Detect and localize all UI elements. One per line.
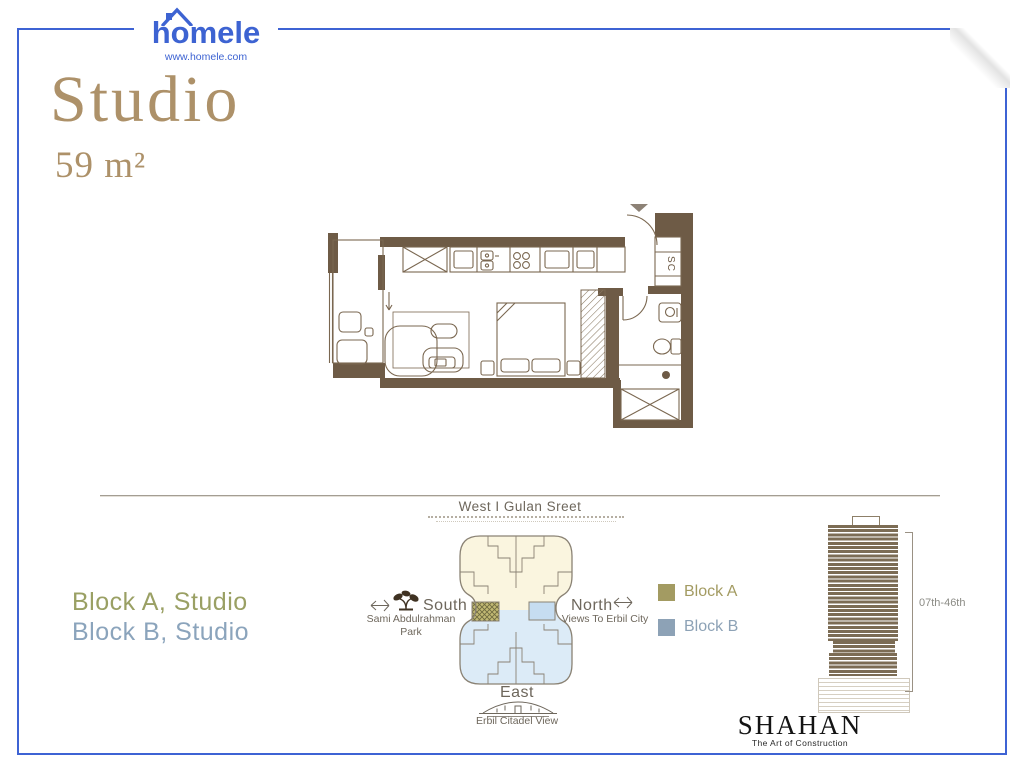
street-label: West I Gulan Sreet	[370, 499, 670, 514]
floors-range-label: 07th-46th	[919, 597, 965, 609]
brand-name: homele	[134, 16, 278, 50]
east-description: Erbil Citadel View	[457, 715, 577, 728]
elevation-podium	[818, 678, 910, 713]
page-curl-shadow	[950, 28, 1010, 88]
wardrobe-hatch	[581, 290, 605, 378]
unit-type-title: Studio	[50, 62, 240, 138]
compass-arrow-south-icon	[367, 598, 391, 613]
street-dashed-line-2	[436, 521, 616, 522]
brand-logo: homele www.homele.com	[134, 4, 278, 70]
developer-logo: SHAHAN The Art of Construction	[725, 711, 875, 748]
elevation-tower-upper	[828, 525, 898, 641]
plant-icon	[391, 589, 421, 612]
building-footprint	[452, 532, 582, 690]
entrance-arrow-icon	[630, 204, 648, 212]
block-a-swatch	[658, 584, 675, 601]
block-b-studio-title: Block B, Studio	[72, 618, 249, 647]
floor-plan: SC	[325, 200, 715, 435]
shaft-label: SC	[665, 256, 676, 272]
house-roof-icon	[160, 6, 198, 26]
floors-bracket-top-tick	[905, 532, 913, 533]
legend-label-block-a: Block A	[684, 583, 737, 601]
block-a-studio-title: Block A, Studio	[72, 588, 248, 617]
north-description: Views To Erbil City	[544, 613, 666, 626]
legend-row-block-a: Block A	[658, 583, 738, 601]
legend-label-block-b: Block B	[684, 618, 738, 636]
south-description: Sami Abdulrahman Park	[351, 613, 471, 638]
brochure-page: homele www.homele.com Studio 59 m²	[0, 0, 1024, 768]
floors-bracket-bottom-tick	[905, 691, 913, 692]
unit-area: 59 m²	[55, 144, 146, 187]
south-desc-line2: Park	[351, 626, 471, 639]
section-divider	[100, 495, 940, 497]
compass-arrow-north-icon	[610, 595, 634, 610]
block-b-swatch	[658, 619, 675, 636]
street-dashed-line	[428, 516, 624, 518]
south-desc-line1: Sami Abdulrahman	[351, 613, 471, 626]
floor-drain	[662, 371, 670, 379]
legend: Block A Block B	[658, 583, 738, 653]
floors-bracket	[912, 532, 913, 692]
developer-name: SHAHAN	[725, 711, 875, 739]
elevation-tower-lower	[829, 653, 897, 676]
elevation-tower-step	[833, 641, 895, 653]
legend-row-block-b: Block B	[658, 618, 738, 636]
